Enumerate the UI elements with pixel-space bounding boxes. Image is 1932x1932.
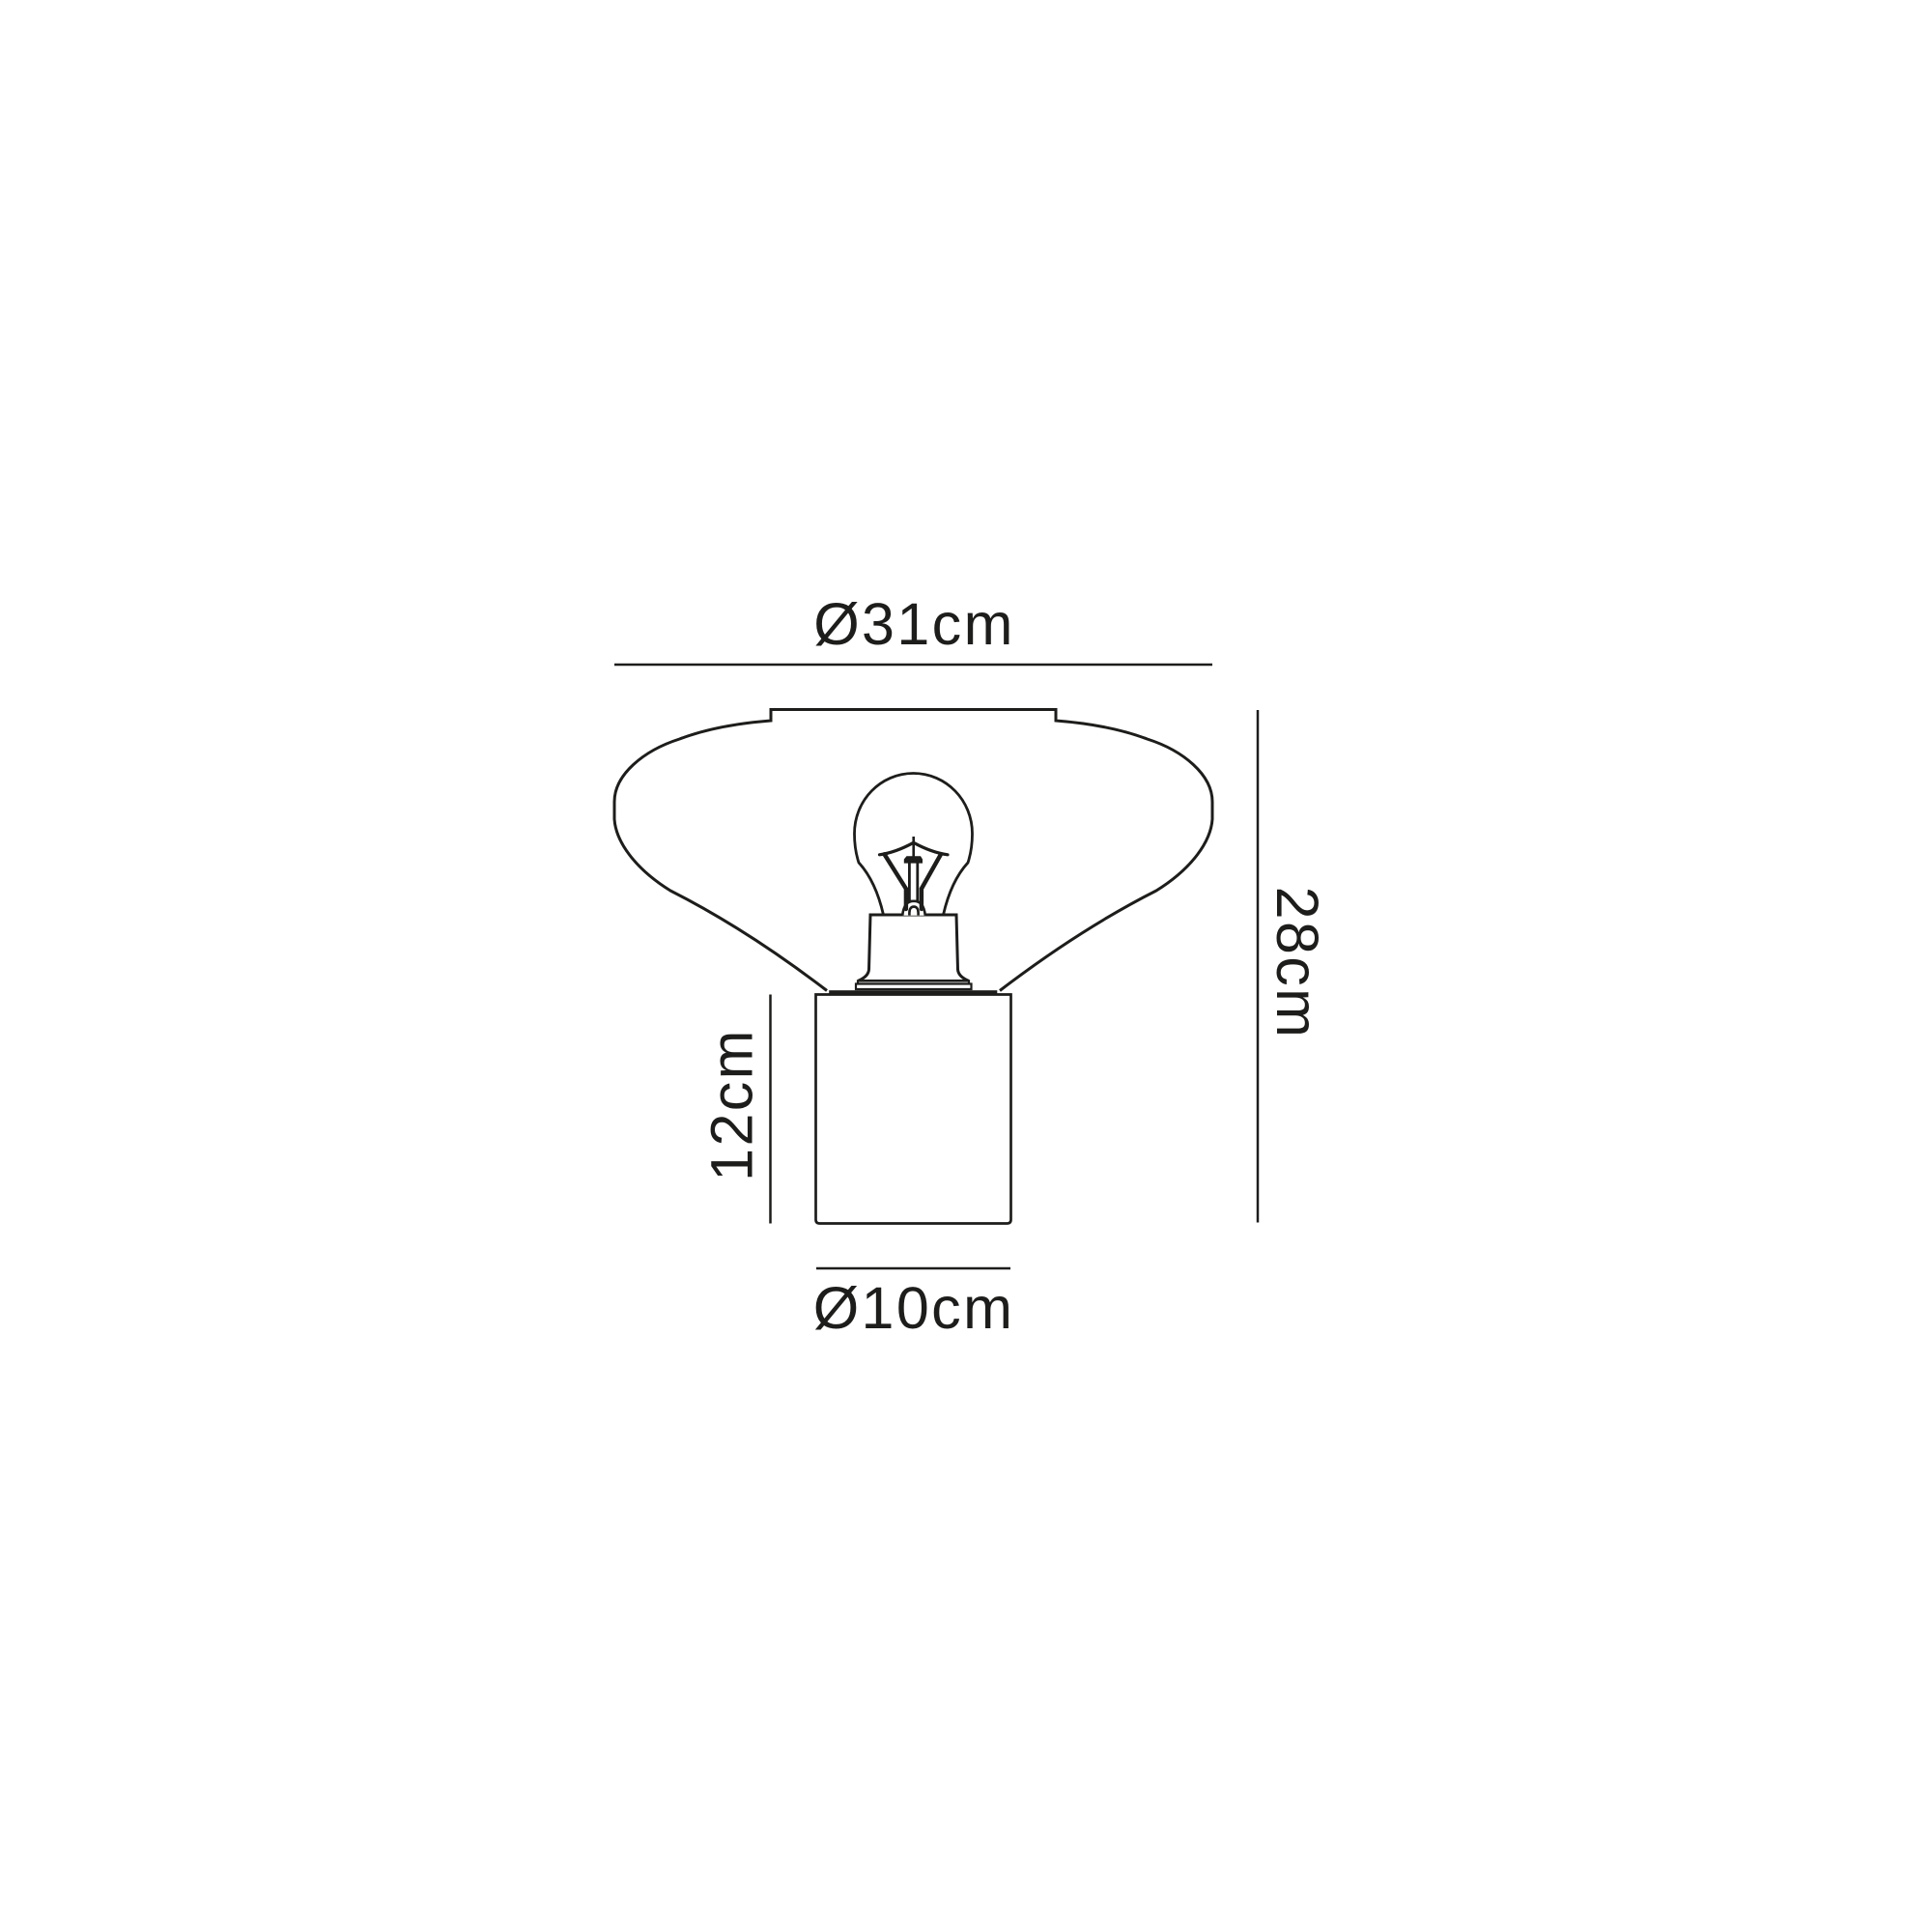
svg-text:Ø31cm: Ø31cm [813, 591, 1015, 657]
svg-text:12cm: 12cm [699, 1028, 765, 1181]
svg-text:Ø10cm: Ø10cm [813, 1275, 1015, 1341]
svg-text:28cm: 28cm [1264, 887, 1330, 1040]
